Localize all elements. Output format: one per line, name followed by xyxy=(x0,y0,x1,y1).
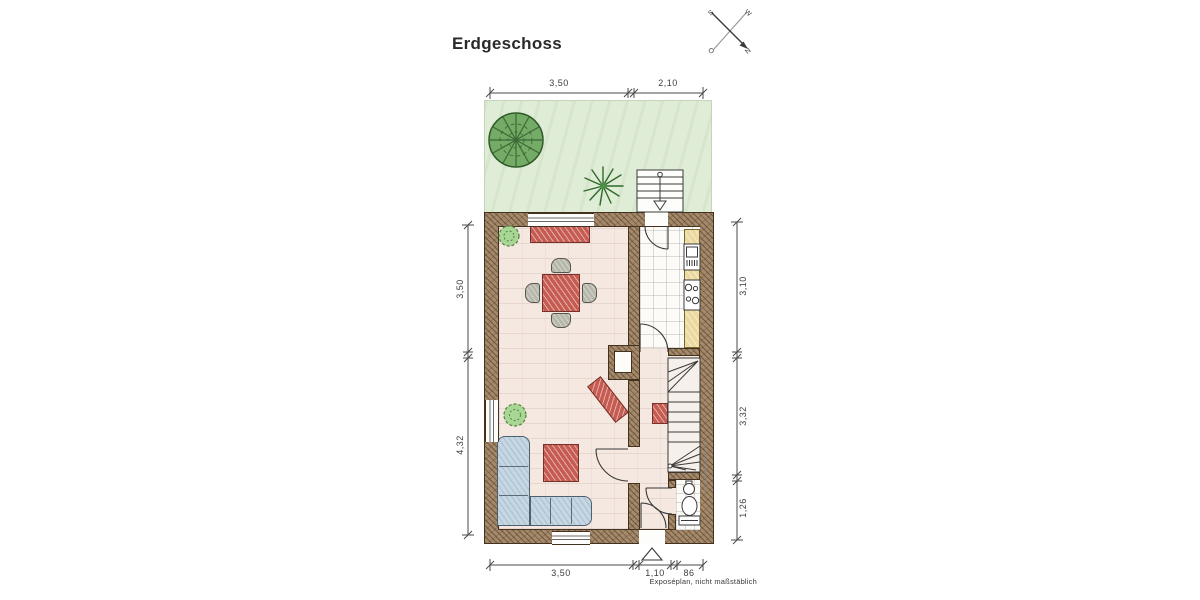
dimension-line-bottom xyxy=(486,559,707,571)
exterior-stairs xyxy=(637,170,683,212)
toilet-icon xyxy=(679,497,700,526)
door-swing-kitchen-exterior xyxy=(645,226,668,249)
stove-icon xyxy=(684,280,700,310)
compass-rose-icon: S W O N xyxy=(706,9,752,57)
interior-stairs xyxy=(668,358,700,472)
bush-icon xyxy=(584,167,623,205)
compass-north-label: N xyxy=(744,47,752,56)
door-swing-entrance xyxy=(641,503,666,528)
dimension-line-top xyxy=(486,87,707,99)
plant-icon xyxy=(499,226,519,246)
bathroom-sink-icon xyxy=(684,481,695,495)
floor-plan-canvas: Erdgeschoss © ExposéPlan 24 3,50 2,10 3,… xyxy=(0,0,1200,600)
kitchen-sink-icon xyxy=(684,244,700,270)
door-swing-kitchen-hall xyxy=(640,324,668,352)
entrance-marker-icon xyxy=(642,548,662,560)
compass-west-label: W xyxy=(743,9,753,19)
tree-icon xyxy=(489,113,543,167)
dimension-line-right xyxy=(731,218,743,544)
plan-overlay: S W O N xyxy=(0,0,1200,600)
dimension-line-left xyxy=(462,221,474,539)
door-swing-living-hall xyxy=(596,449,628,481)
plant-icon xyxy=(504,404,526,426)
